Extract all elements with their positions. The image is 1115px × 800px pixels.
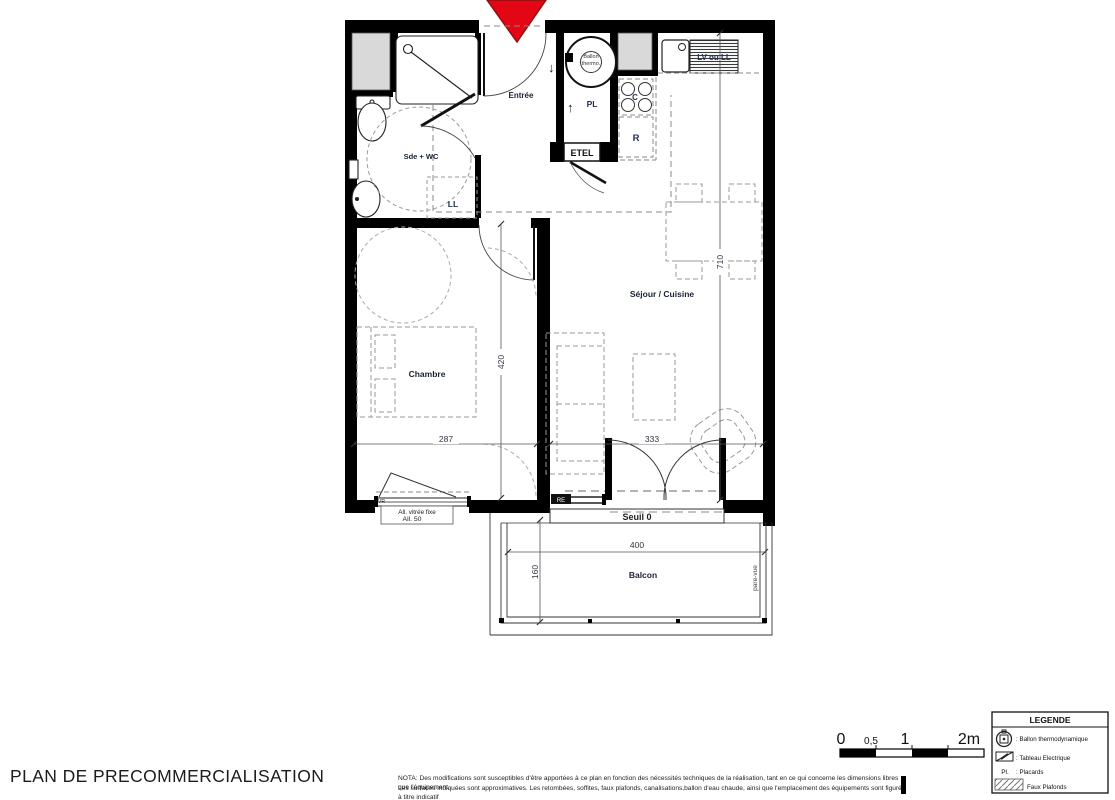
scale-1: 1 bbox=[901, 731, 910, 748]
cooktop-label: C bbox=[632, 93, 638, 102]
room-label-entree: Entrée bbox=[509, 91, 534, 100]
allege-vitree-label: All. vitrée fixe bbox=[398, 509, 436, 516]
chair bbox=[676, 184, 702, 202]
arrow-down-glyph: ↓ bbox=[548, 60, 555, 75]
page-title: PLAN DE PRECOMMERCIALISATION bbox=[10, 766, 324, 787]
chair bbox=[729, 184, 755, 202]
re-label: RE bbox=[557, 498, 565, 504]
bedroom-door bbox=[479, 225, 534, 280]
chair bbox=[676, 261, 702, 279]
allege-50-label: All. 50 bbox=[403, 516, 422, 523]
scale-0: 0 bbox=[837, 731, 846, 748]
ballon-label-1: Ballon bbox=[583, 54, 598, 60]
chair bbox=[729, 261, 755, 279]
lv-ll-label: LV ou LL bbox=[697, 53, 731, 62]
dim-420: 420 bbox=[496, 355, 506, 369]
arrow-up-glyph: ↑ bbox=[567, 100, 574, 115]
etel-box: ETEL bbox=[564, 143, 606, 193]
dim-400: 400 bbox=[630, 540, 644, 550]
turning-circle-bedroom bbox=[355, 227, 451, 323]
etel-label: ETEL bbox=[570, 148, 594, 158]
legend-item-placards: : Placards bbox=[1016, 769, 1044, 776]
edge-mark bbox=[901, 776, 906, 794]
dim-710: 710 bbox=[715, 255, 725, 269]
bedroom-window: VR All. vitrée fixe All. 50 bbox=[374, 473, 471, 524]
legend-item-ballon: : Ballon thermodynamique bbox=[1016, 736, 1088, 743]
washer-label: LL bbox=[448, 199, 458, 209]
nota-text-line2: Les surfaces indiquées sont approximativ… bbox=[398, 784, 910, 800]
pillow bbox=[375, 335, 395, 368]
pillow bbox=[375, 379, 395, 412]
fixed-glazing: RE bbox=[551, 494, 606, 505]
wall-radiator bbox=[349, 160, 358, 179]
floor-plan-page: Ballon thermo. ↓ ↑ PL ETEL LV ou LL C R bbox=[0, 0, 1115, 800]
pare-vue-label: pare-vue bbox=[752, 565, 759, 591]
coffee-table bbox=[633, 354, 675, 420]
ballon-label-2: thermo. bbox=[582, 61, 601, 67]
dim-333: 333 bbox=[645, 434, 659, 444]
legend-title: LEGENDE bbox=[1029, 715, 1070, 725]
closet-label: PL bbox=[587, 99, 598, 109]
room-label-balcon: Balcon bbox=[629, 570, 657, 580]
water-heater: Ballon thermo. bbox=[565, 37, 616, 87]
fridge-label: R bbox=[633, 133, 640, 144]
legend-item-faux-plafonds: Faux Plafonds bbox=[1027, 784, 1067, 791]
room-label-sde-wc: Sde + WC bbox=[404, 152, 439, 161]
room-label-sejour: Séjour / Cuisine bbox=[630, 289, 695, 299]
placards-symbol: Pl. bbox=[1001, 769, 1009, 776]
bedroom-furniture bbox=[355, 227, 536, 496]
scale-bar: 0 0,5 1 2m bbox=[837, 731, 984, 757]
vr-label: VR bbox=[378, 499, 385, 505]
room-label-chambre: Chambre bbox=[409, 369, 446, 379]
legend-item-tableau: : Tableau Electrique bbox=[1016, 755, 1071, 762]
scale-2m: 2m bbox=[958, 731, 980, 748]
legend: LEGENDE : Ballon thermodynamique : Table… bbox=[992, 712, 1108, 793]
threshold: Seuil 0 bbox=[550, 509, 724, 523]
faux-plafonds-icon bbox=[995, 779, 1023, 790]
dim-160: 160 bbox=[530, 565, 540, 579]
seuil-label: Seuil 0 bbox=[622, 512, 651, 522]
entrance-arrow-icon bbox=[487, 0, 546, 42]
dim-287: 287 bbox=[439, 434, 453, 444]
french-doors bbox=[565, 438, 726, 500]
floor-plan-drawing: Ballon thermo. ↓ ↑ PL ETEL LV ou LL C R bbox=[0, 0, 1115, 800]
